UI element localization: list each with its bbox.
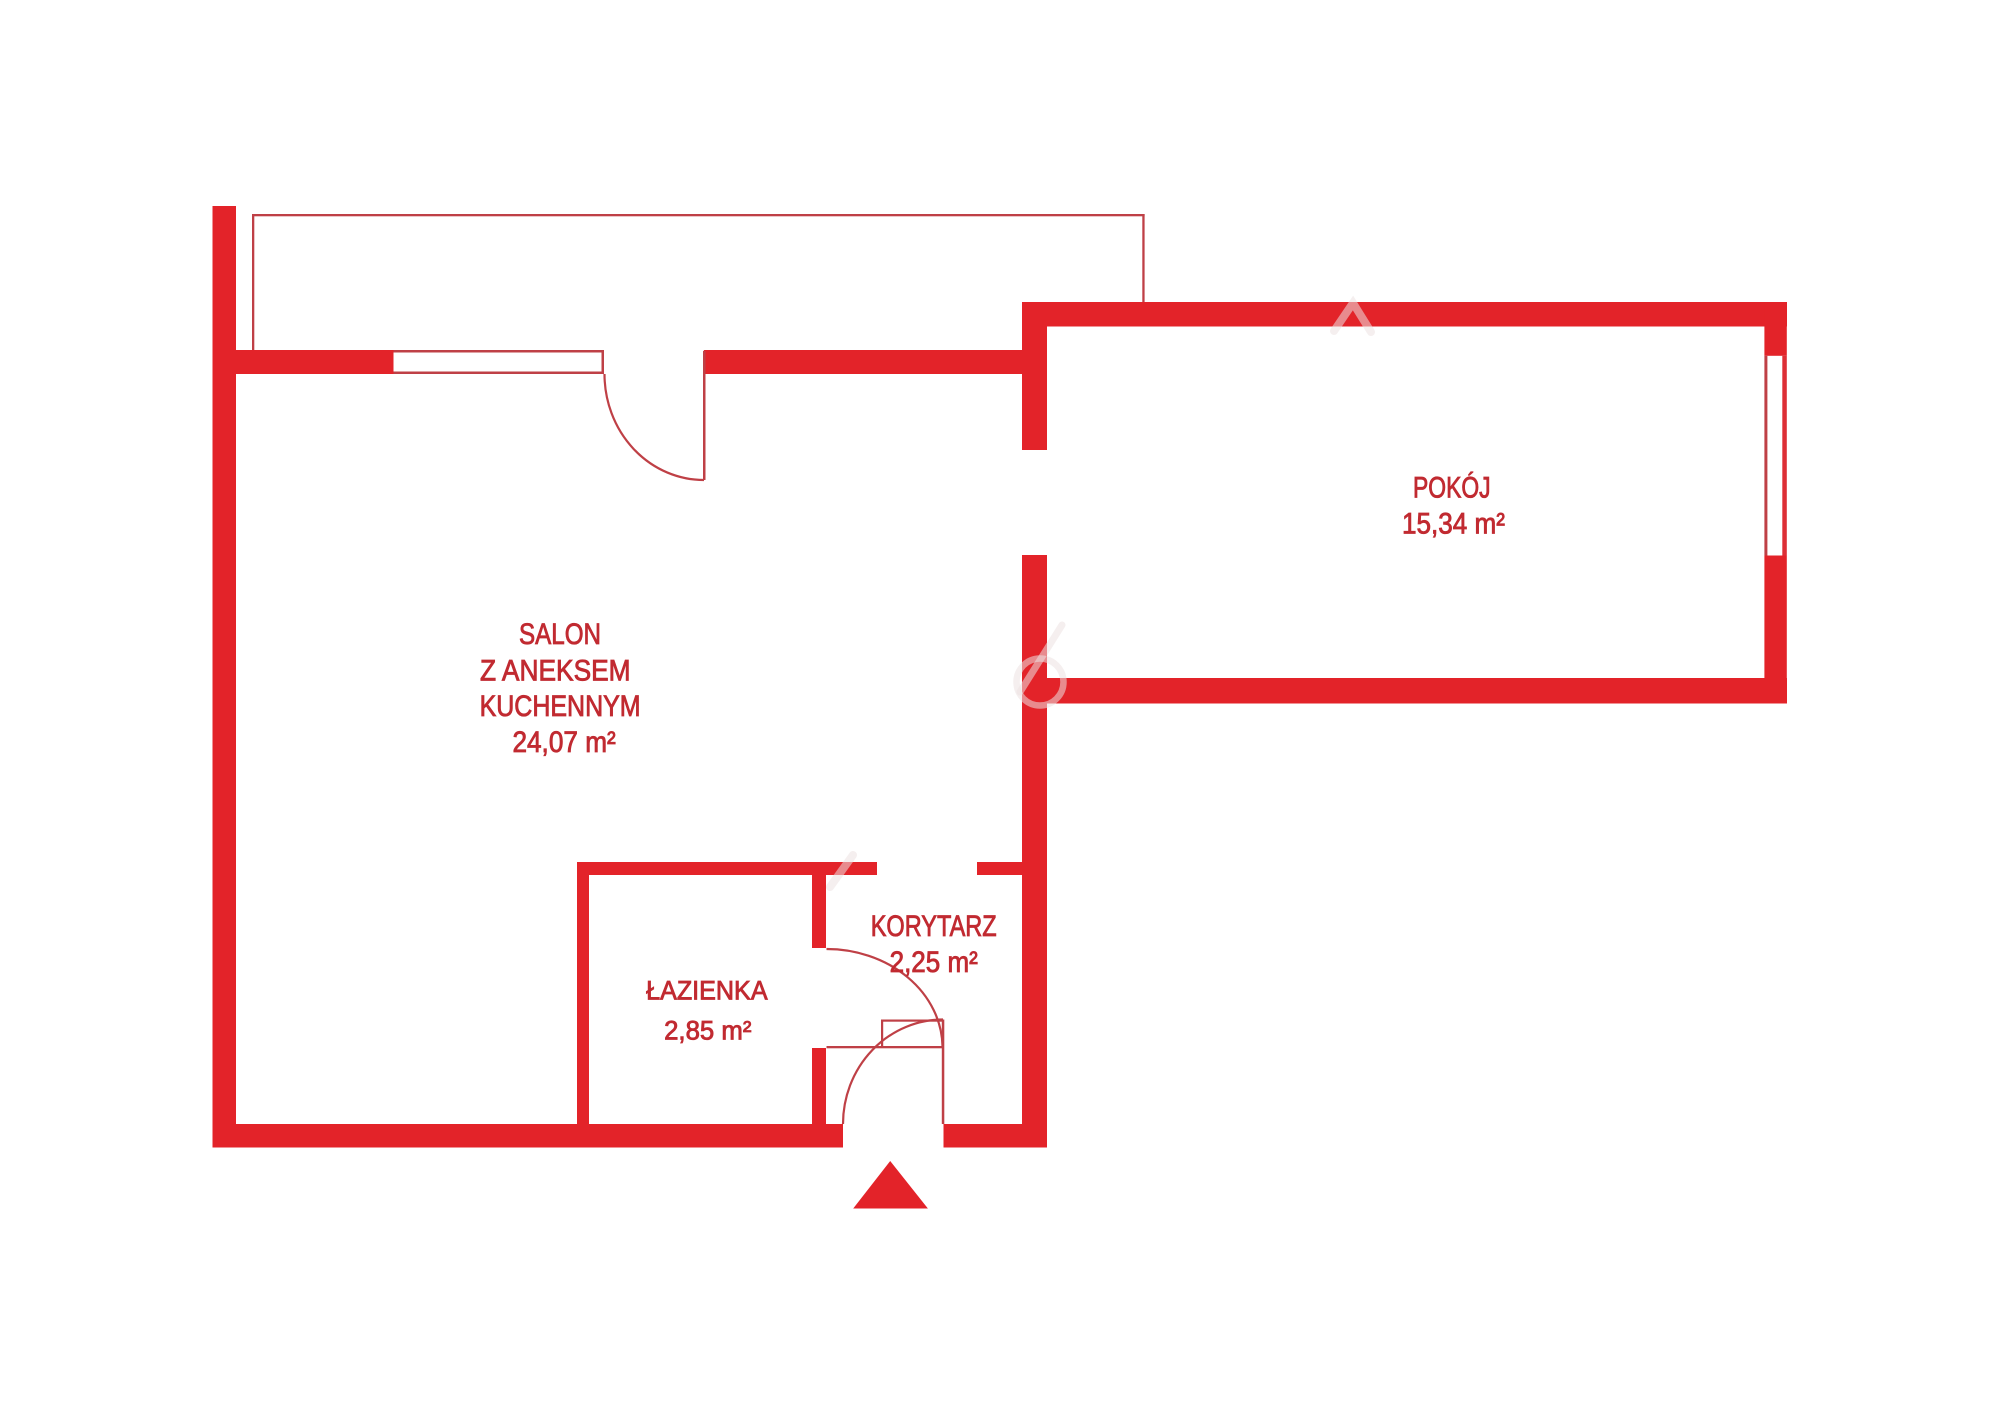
svg-text:15,34 m²: 15,34 m² bbox=[1402, 508, 1505, 541]
svg-text:KORYTARZ: KORYTARZ bbox=[871, 910, 997, 943]
svg-text:Z ANEKSEM: Z ANEKSEM bbox=[480, 655, 631, 688]
svg-text:ŁAZIENKA: ŁAZIENKA bbox=[646, 976, 768, 1006]
svg-text:KUCHENNYM: KUCHENNYM bbox=[480, 690, 641, 723]
svg-text:POKÓJ: POKÓJ bbox=[1413, 472, 1491, 505]
svg-text:SALON: SALON bbox=[519, 618, 601, 651]
svg-text:2,85 m²: 2,85 m² bbox=[664, 1015, 751, 1045]
svg-text:2,25 m²: 2,25 m² bbox=[890, 946, 978, 979]
svg-text:24,07 m²: 24,07 m² bbox=[512, 726, 615, 759]
